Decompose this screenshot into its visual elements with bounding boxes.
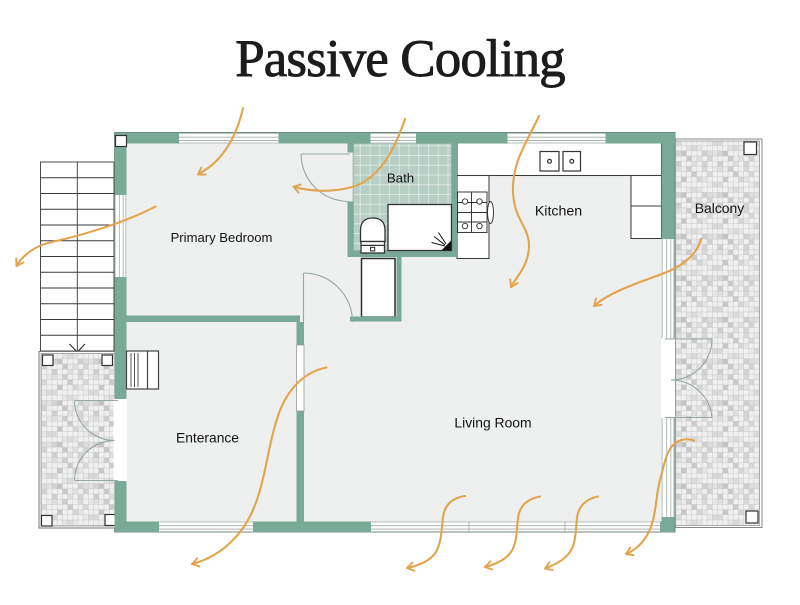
svg-text:Passive Cooling: Passive Cooling bbox=[235, 30, 565, 88]
svg-text:Balcony: Balcony bbox=[695, 200, 744, 216]
svg-text:Enterance: Enterance bbox=[176, 431, 239, 446]
svg-text:Primary Bedroom: Primary Bedroom bbox=[171, 230, 273, 245]
svg-text:Living Room: Living Room bbox=[454, 415, 531, 431]
svg-text:Kitchen: Kitchen bbox=[535, 203, 582, 219]
svg-text:Bath: Bath bbox=[387, 171, 414, 186]
